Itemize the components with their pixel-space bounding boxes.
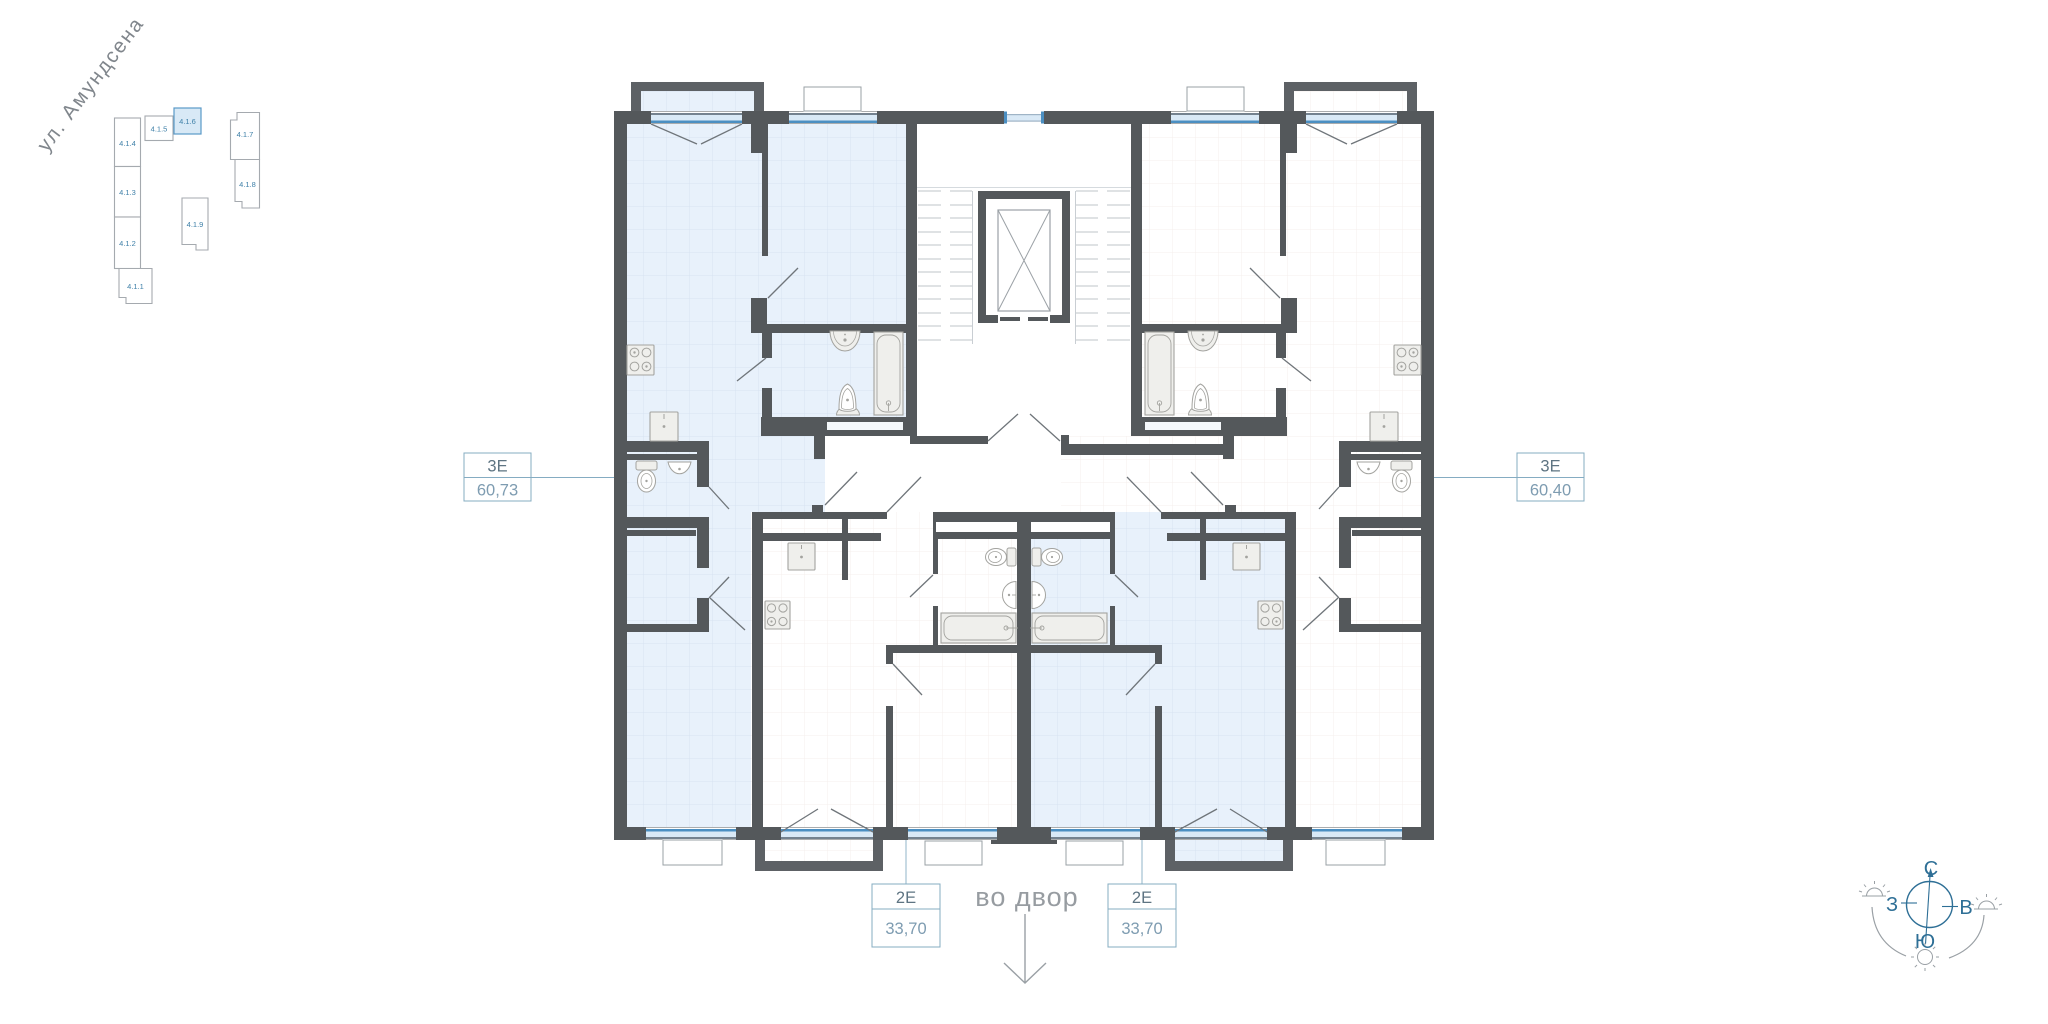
svg-text:2E: 2E [896, 889, 916, 907]
svg-text:4.1.6: 4.1.6 [179, 117, 196, 126]
svg-text:4.1.4: 4.1.4 [119, 139, 136, 148]
svg-text:4.1.7: 4.1.7 [237, 130, 254, 139]
svg-text:60,40: 60,40 [1530, 482, 1571, 500]
svg-text:С: С [1924, 858, 1938, 880]
svg-text:4.1.1: 4.1.1 [127, 282, 144, 291]
svg-text:З: З [1886, 894, 1898, 916]
svg-text:во двор: во двор [975, 882, 1078, 912]
svg-text:2E: 2E [1132, 889, 1152, 907]
svg-text:4.1.3: 4.1.3 [119, 188, 136, 197]
svg-text:33,70: 33,70 [885, 920, 926, 938]
svg-text:3E: 3E [1540, 458, 1560, 476]
svg-text:3E: 3E [487, 458, 507, 476]
svg-text:В: В [1959, 897, 1972, 919]
svg-text:60,73: 60,73 [477, 482, 518, 500]
svg-text:4.1.5: 4.1.5 [151, 125, 168, 134]
svg-text:4.1.8: 4.1.8 [239, 180, 256, 189]
svg-text:4.1.2: 4.1.2 [119, 239, 136, 248]
svg-text:4.1.9: 4.1.9 [187, 220, 204, 229]
svg-text:33,70: 33,70 [1121, 920, 1162, 938]
